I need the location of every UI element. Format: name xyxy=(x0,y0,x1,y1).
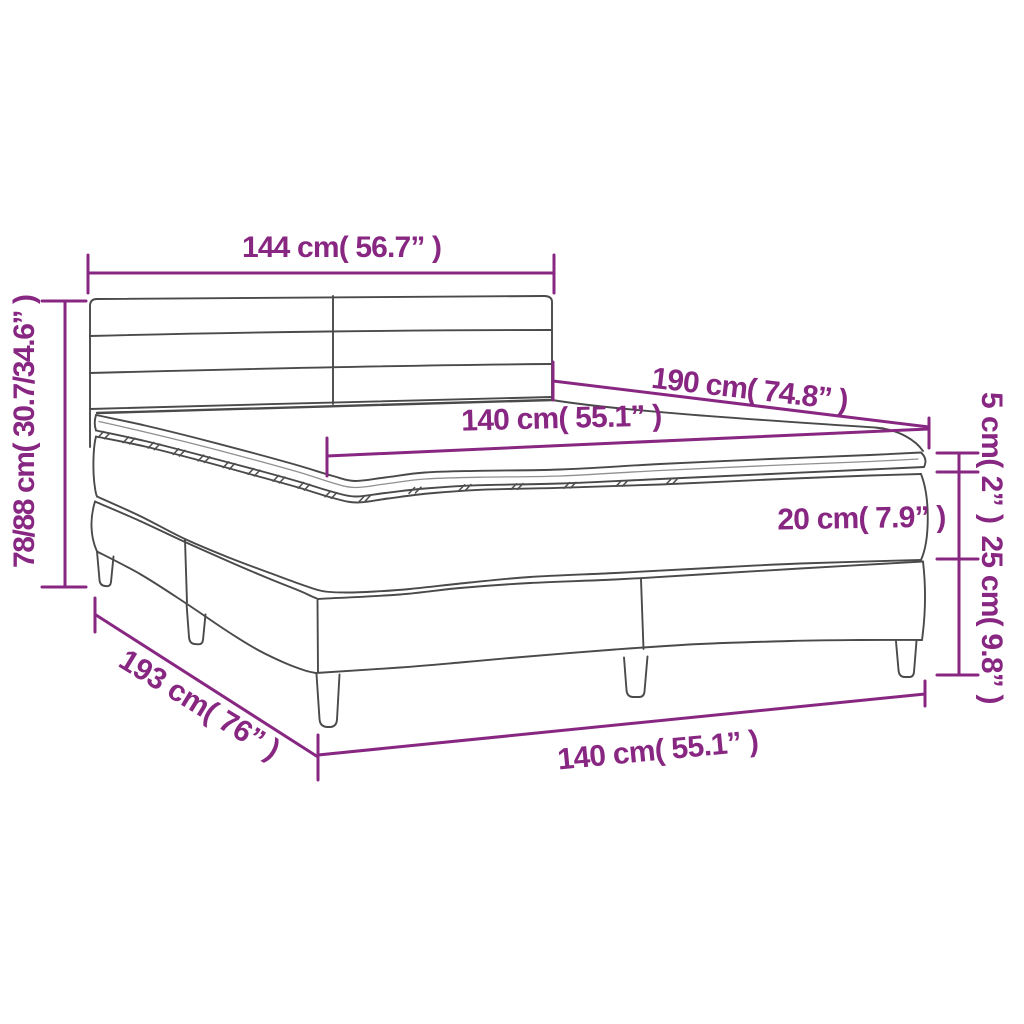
svg-text:78/88 cm( 30.7/34.6” ): 78/88 cm( 30.7/34.6” ) xyxy=(8,294,41,568)
svg-text:20 cm( 7.9” ): 20 cm( 7.9” ) xyxy=(777,501,947,537)
svg-text:144 cm( 56.7” ): 144 cm( 56.7” ) xyxy=(242,231,442,264)
svg-text:25 cm( 9.8” ): 25 cm( 9.8” ) xyxy=(975,536,1008,705)
svg-text:140 cm( 55.1” ): 140 cm( 55.1” ) xyxy=(461,399,663,437)
svg-text:5 cm( 2” ): 5 cm( 2” ) xyxy=(975,392,1008,524)
